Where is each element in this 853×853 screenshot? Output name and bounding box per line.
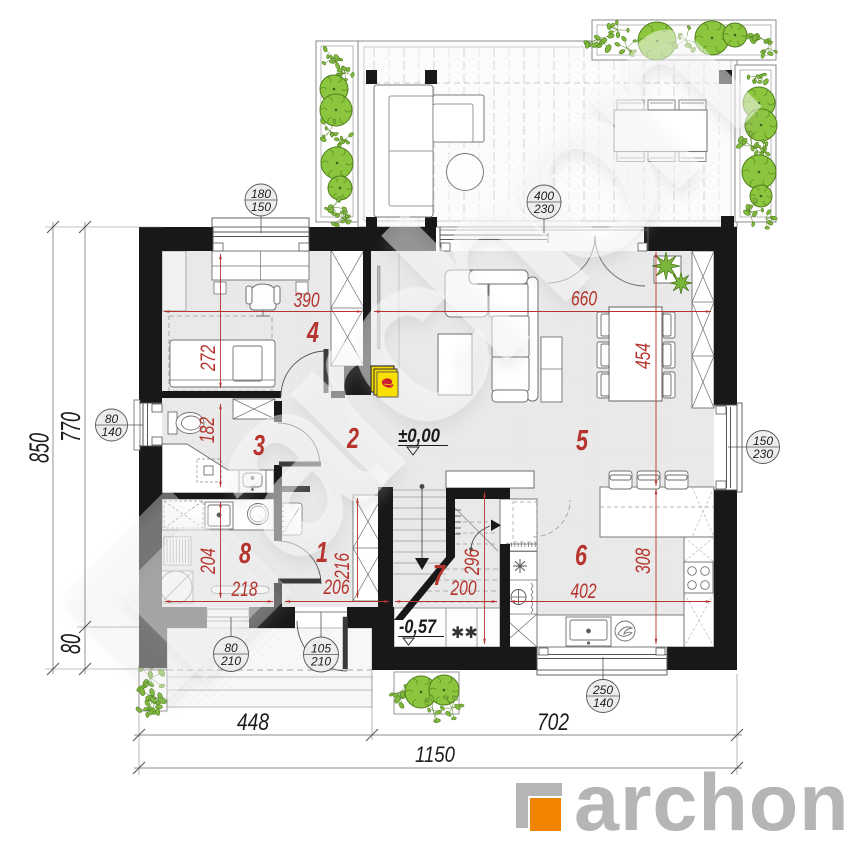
svg-text:770: 770 [55, 412, 86, 442]
svg-text:✱✱: ✱✱ [451, 625, 478, 642]
svg-text:140: 140 [593, 696, 613, 710]
svg-text:6: 6 [575, 540, 588, 572]
svg-text:210: 210 [220, 654, 241, 668]
svg-text:182: 182 [195, 417, 219, 443]
svg-text:216: 216 [330, 553, 354, 580]
svg-text:218: 218 [231, 577, 258, 601]
svg-text:7: 7 [433, 560, 446, 592]
svg-text:200: 200 [450, 576, 477, 600]
svg-text:8: 8 [239, 538, 252, 570]
svg-text:402: 402 [570, 579, 596, 603]
svg-text:2: 2 [346, 423, 359, 455]
svg-text:4: 4 [306, 317, 319, 349]
svg-text:390: 390 [293, 288, 319, 312]
svg-text:204: 204 [196, 548, 220, 575]
svg-text:272: 272 [196, 345, 220, 372]
svg-text:850: 850 [24, 433, 55, 463]
svg-text:296: 296 [460, 549, 484, 576]
svg-text:-0,57: -0,57 [399, 617, 437, 638]
svg-text:308: 308 [631, 548, 655, 574]
svg-text:1: 1 [316, 537, 328, 569]
svg-text:230: 230 [752, 447, 773, 461]
svg-text:210: 210 [310, 654, 331, 668]
svg-text:80: 80 [55, 634, 86, 654]
svg-text:660: 660 [571, 287, 597, 311]
svg-text:230: 230 [533, 202, 554, 216]
svg-text:3: 3 [253, 430, 265, 462]
svg-text:448: 448 [237, 709, 270, 736]
svg-text:5: 5 [576, 425, 589, 457]
svg-text:±0,00: ±0,00 [398, 426, 440, 447]
svg-text:454: 454 [631, 343, 655, 369]
svg-text:archon: archon [574, 758, 849, 848]
svg-text:702: 702 [537, 709, 569, 736]
svg-text:1150: 1150 [415, 742, 455, 767]
svg-text:140: 140 [101, 425, 121, 439]
svg-text:150: 150 [251, 200, 271, 214]
